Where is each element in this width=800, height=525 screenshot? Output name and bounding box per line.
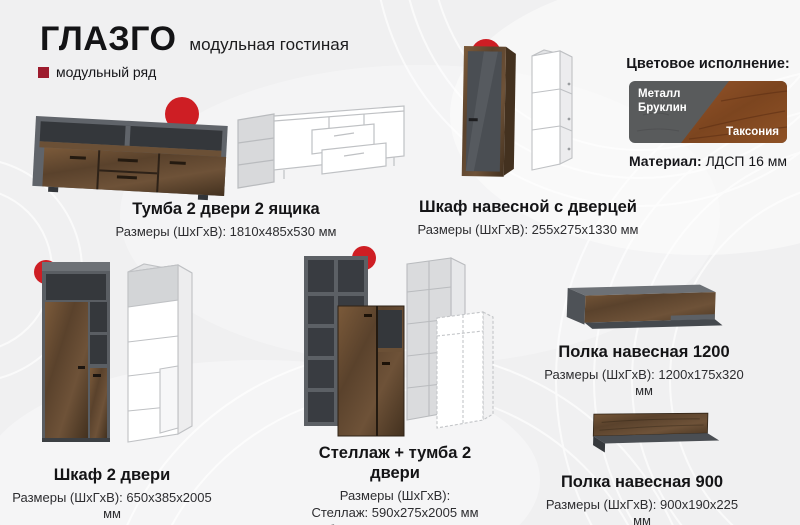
tv-stand-render [32,100,234,202]
shelf-1200-render [566,276,722,334]
product-title: Стеллаж + тумба 2 двери [295,443,495,483]
product-title: Тумба 2 двери 2 ящика [76,199,376,219]
product-size: Стеллаж: 590х275х2005 мм [295,504,495,521]
material-label: Материал: [629,153,702,169]
product-caption: Шкаф 2 двери Размеры (ШхГхВ): 650х385х20… [12,465,212,522]
material-value: ЛДСП 16 мм [706,153,787,169]
tv-stand-wireframe-render [234,104,410,194]
product-title: Полка навесная 1200 [544,342,744,362]
shelving-combo-wireframe-render [403,254,497,436]
product-caption: Полка навесная 900 Размеры (ШхГхВ): 900х… [542,472,742,525]
red-square-bullet [38,67,49,78]
product-size: Размеры (ШхГхВ): 900х190х225 мм [542,497,742,525]
catalog-page: ГЛАЗГО модульная гостиная модульный ряд … [0,0,800,525]
swatch-label-wood: Таксония [726,126,779,138]
header: ГЛАЗГО модульная гостиная [40,20,349,59]
product-size: Тумба 2 дв: 650х385х1350 мм [295,521,495,525]
swatch-label-metal: Металл Бруклин [638,87,710,115]
shelf-900-render [586,406,722,458]
product-title: Шкаф 2 двери [12,465,212,485]
wardrobe-render [28,256,116,452]
wardrobe-wireframe-render [120,256,198,450]
product-caption: Тумба 2 двери 2 ящика Размеры (ШхГхВ): 1… [76,199,376,240]
brand-title: ГЛАЗГО [40,20,176,59]
product-size: Размеры (ШхГхВ): 255х275х1330 мм [413,222,643,238]
finish-swatch: Металл Бруклин Таксония [629,81,787,143]
product-size: Размеры (ШхГхВ): 650х385х2005 мм [12,490,212,522]
brand-subtitle: модульная гостиная [189,35,348,55]
shelving-combo-render [302,248,406,442]
product-size: Размеры (ШхГхВ): 1810х485х530 мм [76,224,376,240]
product-caption: Стеллаж + тумба 2 двери Размеры (ШхГхВ):… [295,443,495,525]
material-line: Материал: ЛДСП 16 мм [626,153,790,169]
finish-panel: Цветовое исполнение: Металл Бруклин Такс… [626,56,790,169]
product-title: Шкаф навесной с дверцей [413,197,643,217]
product-caption: Шкаф навесной с дверцей Размеры (ШхГхВ):… [413,197,643,238]
product-title: Полка навесная 900 [542,472,742,492]
series-label: модульный ряд [56,64,156,80]
product-size: Размеры (ШхГхВ): 1200х175х320 мм [544,367,744,399]
finish-title: Цветовое исполнение: [626,56,790,72]
product-size: Размеры (ШхГхВ): [295,488,495,504]
product-caption: Полка навесная 1200 Размеры (ШхГхВ): 120… [544,342,744,399]
wall-cabinet-wireframe-render [524,44,580,179]
series-row: модульный ряд [38,64,156,80]
wall-cabinet-render [448,38,523,180]
